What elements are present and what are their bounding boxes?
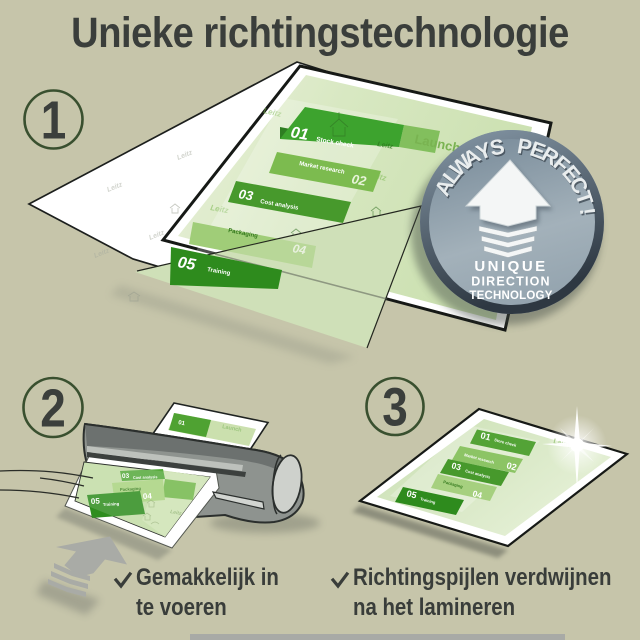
svg-text:1: 1 xyxy=(41,90,67,150)
svg-text:DIRECTION: DIRECTION xyxy=(471,275,551,289)
svg-text:2: 2 xyxy=(40,378,66,438)
svg-text:3: 3 xyxy=(382,377,408,437)
svg-text:01: 01 xyxy=(289,124,310,144)
svg-text:Leitz: Leitz xyxy=(93,247,111,260)
svg-text:TECHNOLOGY: TECHNOLOGY xyxy=(469,290,552,302)
svg-text:UNIQUE: UNIQUE xyxy=(474,258,547,275)
